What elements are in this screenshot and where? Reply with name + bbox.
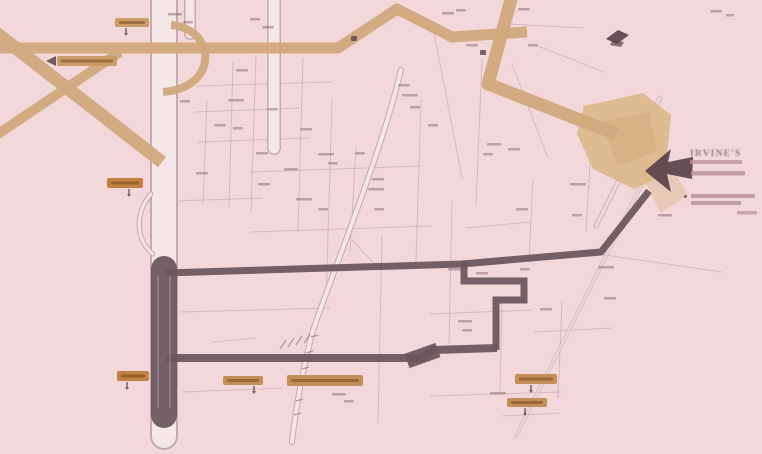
road-label-text [119,21,145,24]
micro-label [604,297,616,300]
micro-label [487,143,501,146]
micro-label [518,8,530,11]
map-background [0,0,762,454]
micro-label [250,18,260,21]
micro-label [428,124,438,127]
micro-label [236,69,248,72]
micro-label [572,214,582,217]
micro-label [355,152,365,155]
micro-label [300,128,312,131]
road-label [57,56,117,66]
micro-label [183,21,193,24]
micro-label [508,148,520,151]
micro-label [398,84,410,87]
micro-label [458,320,472,323]
micro-label [228,99,244,102]
micro-label [332,393,346,396]
micro-label [490,392,506,395]
poi-icon [480,50,486,55]
micro-label [233,127,243,130]
project-title: IRVINE'S [690,149,742,159]
micro-label [268,108,278,111]
micro-label [442,12,454,15]
micro-label [726,14,734,17]
legend-line [691,171,745,176]
micro-label [462,329,472,332]
micro-label [658,214,672,217]
micro-label [456,9,466,12]
micro-label [448,268,462,271]
road-label-text [511,401,543,404]
micro-label [318,208,328,211]
micro-label [168,13,182,16]
micro-label [296,198,312,201]
micro-label [214,124,226,127]
road-label-text [111,182,139,185]
micro-label [256,152,268,155]
micro-label [410,106,420,109]
legend-note [737,211,757,215]
micro-label [318,153,334,156]
micro-label [402,94,418,97]
road-label-text [61,60,113,63]
micro-label [710,10,722,13]
micro-label [258,183,270,186]
irvines-location-map: IRVINE'S [0,0,762,454]
micro-label [374,208,384,211]
route-segment [407,350,438,361]
micro-label [598,266,614,269]
micro-label [344,400,354,403]
micro-label [528,44,538,47]
legend-subtitle [690,160,742,164]
micro-label [516,208,528,211]
micro-label [540,308,552,311]
road-label-text [121,375,145,378]
micro-label [476,272,488,275]
legend-line [691,201,741,205]
road-label [287,375,363,386]
micro-label [328,162,338,165]
road-label-text [519,378,553,381]
micro-label [262,26,274,29]
micro-label [483,153,493,156]
legend-bullet [684,195,687,198]
poi-icon [351,36,357,41]
micro-label [570,183,586,186]
legend-bullet [684,172,687,175]
micro-label [466,44,478,47]
road-label-text [291,379,359,382]
micro-label [372,178,384,181]
micro-label [196,172,208,175]
micro-label [180,100,190,103]
micro-label [368,188,384,191]
micro-label [520,268,530,271]
legend-line [691,194,755,198]
micro-label [284,168,298,171]
map-canvas: IRVINE'S [0,0,762,454]
road-label-text [227,379,259,382]
